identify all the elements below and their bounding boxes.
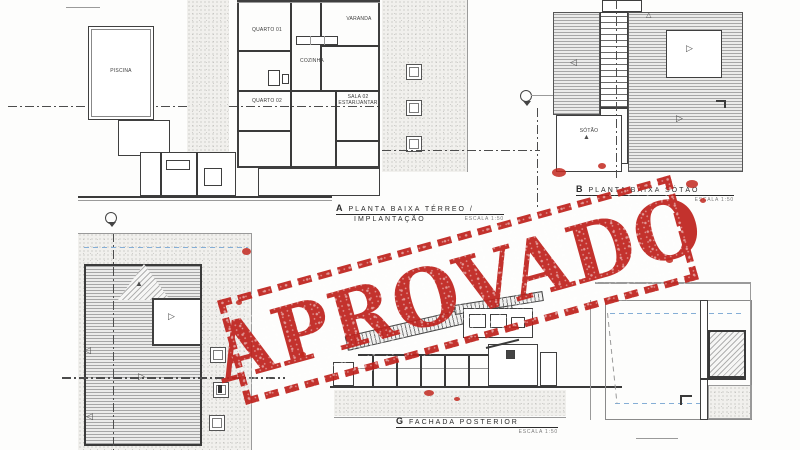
stair-up-arrow-icon: ▲ (583, 134, 590, 141)
room-label: SALA 02 ESTAR/JANTAR (338, 94, 378, 106)
gable-arrow-icon: ▲ (135, 280, 143, 288)
room-label: VARANDA (340, 16, 378, 22)
section-letter: A (336, 203, 343, 213)
counter-divider (324, 36, 325, 45)
blueprint-sheet: PISCINA QUARTO 01 VARANDA COZINHA QUARTO… (0, 0, 800, 450)
site-divider (700, 300, 708, 420)
roof-slope-arrow-icon: ◁ (86, 412, 93, 421)
roof-top-box (602, 0, 642, 12)
ink-splatter (700, 198, 706, 203)
section-marker-pointer (108, 222, 116, 227)
plan-lower-ext (258, 168, 380, 196)
section-marker-pointer (523, 101, 531, 106)
dimension-line (590, 300, 591, 420)
wall-line (237, 50, 292, 52)
ink-splatter (300, 352, 306, 357)
boundary-line (467, 0, 468, 172)
column-fill (218, 385, 222, 393)
site-line (700, 378, 746, 380)
roof-notch (152, 298, 202, 346)
roof-slope-arrow-icon: ▷ (686, 44, 693, 53)
chimney (540, 352, 557, 386)
wall-line (335, 90, 337, 168)
boundary-line (78, 233, 252, 234)
wall-line (290, 0, 292, 168)
bath-fixture (268, 70, 280, 86)
caption-terreo: A PLANTA BAIXA TÉRREO / IMPLANTAÇÃO ESCA… (336, 203, 504, 223)
site-right-line (750, 282, 751, 420)
post (444, 356, 446, 386)
ground-baseline-2 (78, 200, 332, 201)
column-marker (406, 64, 422, 80)
section-letter: G (396, 416, 403, 426)
pool-label: PISCINA (93, 68, 149, 74)
axis-line-v (537, 108, 538, 208)
caption-title: FACHADA POSTERIOR (409, 419, 519, 426)
attic-room (556, 115, 622, 172)
ink-splatter (686, 180, 698, 188)
roof-slope-arrow-icon: ◁ (570, 58, 577, 67)
bracket-line (680, 395, 692, 397)
ink-splatter (598, 163, 606, 169)
ink-splatter (236, 300, 242, 305)
kitchen-counter (296, 36, 338, 45)
wall-line (237, 130, 292, 132)
post (468, 356, 470, 386)
tiny-annotation (636, 438, 678, 439)
wall-line (196, 152, 198, 196)
ink-splatter (552, 168, 566, 177)
ink-splatter (424, 390, 434, 396)
caption-subtitle: IMPLANTAÇÃO (354, 216, 426, 223)
section-letter: B (576, 184, 583, 194)
room-label: QUARTO 02 (246, 98, 288, 104)
wall-line (335, 140, 380, 142)
caption-scale: ESCALA 1:50 (396, 429, 558, 435)
dimension-line (237, 2, 380, 3)
bath-fixture (282, 74, 289, 84)
column-marker (209, 415, 225, 431)
ground-baseline (78, 196, 332, 198)
axis-line-v (113, 233, 114, 450)
ink-splatter (666, 258, 673, 263)
gable-arrow-icon: △ (646, 12, 651, 19)
axis-line-v (616, 0, 617, 178)
axis-line (382, 150, 540, 151)
wall-line (160, 152, 162, 196)
annex-fixture (204, 168, 222, 186)
site-stipple-block (708, 385, 752, 419)
post (420, 356, 422, 386)
column-marker (406, 100, 422, 116)
tiny-annotation (66, 7, 100, 8)
annex-window (506, 350, 515, 359)
guide-line-blue (610, 313, 742, 314)
ink-splatter (242, 248, 251, 255)
counter-divider (310, 36, 311, 45)
roof-slope-arrow-icon: ◁ (84, 346, 91, 355)
guide-line-blue (84, 247, 248, 248)
ground-texture (334, 390, 566, 416)
plan-outer-wall (237, 0, 380, 168)
roof-slope-arrow-icon: ▷ (168, 312, 175, 321)
site-hatched-block (708, 330, 746, 378)
room-label: COZINHA (293, 58, 331, 64)
roof-slope-arrow-icon: ▷ (676, 114, 683, 123)
room-label: QUARTO 01 (246, 27, 288, 33)
caption-title: PLANTA BAIXA TÉRREO / (349, 206, 474, 213)
stair-icon (600, 12, 628, 108)
section-line (531, 95, 553, 96)
caption-fachada: G FACHADA POSTERIOR ESCALA 1:50 (396, 416, 558, 435)
wall-line (237, 90, 380, 92)
annex-upper (118, 120, 170, 156)
wall-line (320, 45, 380, 47)
bracket-line (680, 395, 682, 405)
ink-splatter (454, 397, 460, 401)
garden-strip (382, 0, 468, 172)
bracket-line (724, 100, 726, 108)
annex-fixture (166, 160, 190, 170)
ground-line (330, 386, 622, 388)
roof-notch (666, 30, 722, 78)
